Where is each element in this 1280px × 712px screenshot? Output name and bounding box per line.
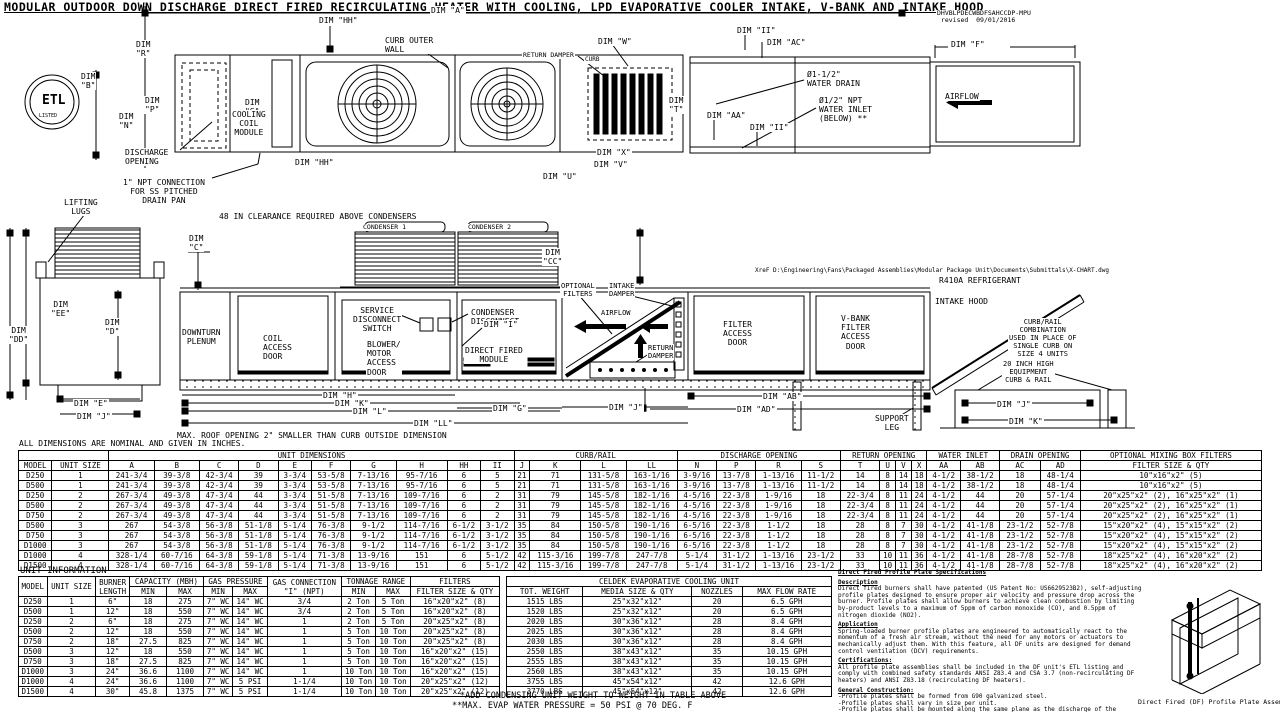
table-cell: 38-1/2 xyxy=(960,481,999,491)
table-row: 2560 LBS38"x43"x12"3510.15 GPH xyxy=(507,667,832,677)
table-cell: 6-1/2 xyxy=(447,521,480,531)
table-cell: 59-1/8 xyxy=(239,561,278,571)
dim-t-label: DIM "T" xyxy=(668,96,684,114)
table-cell: 4-1/2 xyxy=(927,501,960,511)
table-cell: 1-1/4 xyxy=(267,687,341,697)
table-cell: 59-1/8 xyxy=(239,551,278,561)
table-cell: 7-13/16 xyxy=(351,491,396,501)
table-cell: 2 xyxy=(481,491,514,501)
table-cell: 7" WC xyxy=(203,677,232,687)
table-cell: 22-3/4 xyxy=(840,491,879,501)
table-cell: 22-3/8 xyxy=(717,521,756,531)
table-cell: 5 xyxy=(481,481,514,491)
table-cell: D250 xyxy=(19,617,48,627)
table-cell: 5 xyxy=(481,471,514,481)
table-cell: 57-1/4 xyxy=(1040,511,1080,521)
table-cell: 2555 LBS xyxy=(507,657,583,667)
table-cell: 15"x20"x2" (4), 15"x15"x2" (2) xyxy=(1080,521,1261,531)
table-cell: 3 xyxy=(52,531,109,541)
table-cell: 5-1/4 xyxy=(278,521,311,531)
table-cell: 8.4 GPH xyxy=(742,627,831,637)
table-cell: 3 xyxy=(47,667,96,677)
table-cell: 328-1/4 xyxy=(109,561,154,571)
table-cell: 8 xyxy=(880,541,896,551)
table-cell: 52-7/8 xyxy=(1040,531,1080,541)
celdek-header-row: TOT. WEIGHTMEDIA SIZE & QTYNOZZLESMAX FL… xyxy=(507,587,832,597)
dim-r-label: DIM "R" xyxy=(135,40,151,58)
table-cell: 6 xyxy=(447,471,480,481)
dim-k-curb-label: DIM "K" xyxy=(1008,417,1044,426)
table-cell: 22-3/4 xyxy=(840,501,879,511)
table-cell: 4-1/2 xyxy=(927,511,960,521)
table-cell: 550 xyxy=(166,607,203,617)
table-cell: 18" xyxy=(96,637,130,647)
celdek-title: CELDEK EVAPORATIVE COOLING UNIT xyxy=(507,577,832,587)
table-cell: 35 xyxy=(692,667,742,677)
table-cell: D1000 xyxy=(19,667,48,677)
column-header: AD xyxy=(1040,461,1080,471)
table-cell: 6 xyxy=(447,491,480,501)
table-cell: 190-1/16 xyxy=(626,541,677,551)
table-cell: 15"x20"x2" (4), 15"x15"x2" (2) xyxy=(1080,531,1261,541)
table-cell: 13-9/16 xyxy=(351,551,396,561)
table-cell: 16"x20"x2" (15) xyxy=(410,667,499,677)
column-header: J xyxy=(514,461,530,471)
table-cell: 14" WC xyxy=(233,637,268,647)
table-cell: 7-13/16 xyxy=(351,511,396,521)
curb-outer-wall-label: CURB OUTER WALL xyxy=(384,36,434,54)
table-cell: 2 xyxy=(52,491,109,501)
table-cell: 10 Ton xyxy=(376,647,410,657)
table-cell: 7" WC xyxy=(203,597,232,607)
table-cell: 5-1/4 xyxy=(278,531,311,541)
table-cell: 3 xyxy=(52,541,109,551)
table-cell: 8 xyxy=(880,501,896,511)
table-cell: 2 xyxy=(52,501,109,511)
table-cell: 13-7/8 xyxy=(717,481,756,491)
table-row: 2550 LBS38"x43"x12"3510.15 GPH xyxy=(507,647,832,657)
table-row: D1000326754-3/856-3/851-1/85-1/476-3/89-… xyxy=(19,541,1262,551)
dim-x-label: DIM "X" xyxy=(596,148,632,157)
table-cell: 48-1/4 xyxy=(1040,481,1080,491)
table-cell: 49-3/8 xyxy=(154,501,199,511)
table-cell: 2 xyxy=(52,511,109,521)
table-cell: 5-1/2 xyxy=(481,561,514,571)
table-cell: 145-5/8 xyxy=(581,491,626,501)
column-header: V xyxy=(896,461,912,471)
table-cell: 76-3/8 xyxy=(312,521,351,531)
table-row: 2555 LBS38"x43"x12"3510.15 GPH xyxy=(507,657,832,667)
table-cell: 7-13/16 xyxy=(351,471,396,481)
table-cell: 4 xyxy=(52,551,109,561)
table-cell: 5-1/4 xyxy=(677,551,716,561)
table-cell: 5 Ton xyxy=(341,657,375,667)
table-cell: 5 Ton xyxy=(341,637,375,647)
table-cell: 20 xyxy=(1000,511,1040,521)
table-cell: 79 xyxy=(530,511,581,521)
table-cell: 22-3/8 xyxy=(717,541,756,551)
table-cell: 11-1/2 xyxy=(801,481,840,491)
table-cell: 20 xyxy=(692,607,742,617)
table-cell: 36.6 xyxy=(129,667,166,677)
general-construction-list: -Profile plates shall be formed from G90… xyxy=(838,694,1144,712)
table-cell: 6-1/2 xyxy=(447,541,480,551)
table-cell: 114-7/16 xyxy=(396,521,447,531)
table-cell: 22-3/4 xyxy=(840,511,879,521)
column-header: R xyxy=(756,461,801,471)
table-cell: 60-7/16 xyxy=(154,561,199,571)
table-cell: 28-7/8 xyxy=(1000,551,1040,561)
column-header: K xyxy=(530,461,581,471)
table-cell: 190-1/16 xyxy=(626,531,677,541)
table-cell: 1 xyxy=(267,637,341,647)
table-cell: 18"x25"x2" (4), 16"x20"x2" (2) xyxy=(1080,551,1261,561)
table-cell: 4-1/2 xyxy=(927,491,960,501)
table-cell: 56-3/8 xyxy=(199,541,238,551)
table-cell: 5 Ton xyxy=(376,617,410,627)
table-cell: 76-3/8 xyxy=(312,541,351,551)
table-cell: 56-3/8 xyxy=(199,521,238,531)
table-cell: 52-7/8 xyxy=(1040,561,1080,571)
table-row: D750318"27.58257" WC14" WC15 Ton10 Ton16… xyxy=(19,657,500,667)
table-cell: 5 Ton xyxy=(341,627,375,637)
drawing-labels: DHVBLPDECWBDFSAHCCDP-MPU revised 09/01/2… xyxy=(0,0,1280,445)
table-cell: 5 Ton xyxy=(376,597,410,607)
column-header: AB xyxy=(960,461,999,471)
table-row: D750218"27.58257" WC14" WC15 Ton10 Ton20… xyxy=(19,637,500,647)
table-cell: 28 xyxy=(692,637,742,647)
table-row: D500212"185507" WC14" WC15 Ton10 Ton20"x… xyxy=(19,627,500,637)
table-cell: 1-9/16 xyxy=(756,501,801,511)
table-cell: 1-9/16 xyxy=(756,491,801,501)
column-header: MEDIA SIZE & QTY xyxy=(583,587,692,597)
table-cell: 150-5/8 xyxy=(581,521,626,531)
table-cell: 10 Ton xyxy=(376,657,410,667)
table-cell: 30 xyxy=(911,531,927,541)
table-cell: 328-1/4 xyxy=(109,551,154,561)
table-cell: 71-3/8 xyxy=(312,561,351,571)
table-cell: 23-1/2 xyxy=(1000,531,1040,541)
table-cell: 6 xyxy=(447,561,480,571)
table-cell: 6 xyxy=(447,511,480,521)
table-cell: 10 xyxy=(880,551,896,561)
table-cell: 6" xyxy=(96,597,130,607)
table-cell: 23-1/2 xyxy=(801,551,840,561)
table-cell: 199-7/8 xyxy=(581,551,626,561)
table-cell: 1-1/4 xyxy=(267,677,341,687)
table-cell: 20"x25"x2" (2), 16"x25"x2" (1) xyxy=(1080,511,1261,521)
dim-p-label: DIM "P" xyxy=(144,96,160,114)
table-cell: 190-1/16 xyxy=(626,521,677,531)
table-cell: 10"x16"x2" (5) xyxy=(1080,471,1261,481)
lifting-lugs-label: LIFTING LUGS xyxy=(63,198,99,216)
table-cell: 4-5/16 xyxy=(677,491,716,501)
table-cell: 2020 LBS xyxy=(507,617,583,627)
table-cell: 22-3/8 xyxy=(717,511,756,521)
table-cell: 131-5/8 xyxy=(581,481,626,491)
table-cell: 5 Ton xyxy=(341,647,375,657)
table-cell: 9-1/2 xyxy=(351,541,396,551)
all-dims-note: ALL DIMENSIONS ARE NOMINAL AND GIVEN IN … xyxy=(18,439,246,448)
table-cell: 47-3/4 xyxy=(199,491,238,501)
table-cell: 51-5/8 xyxy=(312,511,351,521)
table-cell: 6.5 GPH xyxy=(742,607,831,617)
column-header: HH xyxy=(447,461,480,471)
table-cell: 30"x36"x12" xyxy=(583,627,692,637)
dim-g-label: DIM "G" xyxy=(492,404,528,413)
table-cell: 7" WC xyxy=(203,607,232,617)
table-cell: 3-3/4 xyxy=(278,471,311,481)
coil-access-door-label: COIL ACCESS DOOR xyxy=(262,334,293,362)
table-cell: 30 xyxy=(911,521,927,531)
table-cell: D1000 xyxy=(19,677,48,687)
table-cell: 3 xyxy=(47,657,96,667)
table-cell: 30" xyxy=(96,687,130,697)
table-cell: 8 xyxy=(880,511,896,521)
table-cell: 71-3/8 xyxy=(312,551,351,561)
column-header: FILTER SIZE & QTY xyxy=(1080,461,1261,471)
dim-e-label: DIM "E" xyxy=(73,399,109,408)
table-cell: 44 xyxy=(239,491,278,501)
table-cell: D500 xyxy=(19,647,48,657)
table-cell: 42 xyxy=(514,551,530,561)
table-cell: D250 xyxy=(19,491,52,501)
table-cell: 31-1/2 xyxy=(717,561,756,571)
column-header: UNIT SIZE xyxy=(52,461,109,471)
group-capacity: CAPACITY (MBH) xyxy=(129,577,203,587)
table-cell: 31 xyxy=(514,491,530,501)
table-cell: 163-1/16 xyxy=(626,481,677,491)
table-cell: 7 xyxy=(896,531,912,541)
table-cell: 2550 LBS xyxy=(507,647,583,657)
table-cell: 13-9/16 xyxy=(351,561,396,571)
table-cell: 145-5/8 xyxy=(581,501,626,511)
table-cell: 18 xyxy=(911,471,927,481)
table-cell: 6-5/16 xyxy=(677,541,716,551)
table-cell: 56-3/8 xyxy=(199,531,238,541)
col-burner-length: BURNER LENGTH xyxy=(96,577,130,597)
table-cell: 267-3/4 xyxy=(109,511,154,521)
table-cell: 54-3/8 xyxy=(154,531,199,541)
table-cell: 30 xyxy=(911,541,927,551)
table-cell: 10.15 GPH xyxy=(742,647,831,657)
intake-damper-label: INTAKE DAMPER xyxy=(608,282,635,298)
table-cell: 39-3/8 xyxy=(154,471,199,481)
table-cell: 18 xyxy=(801,521,840,531)
table-cell: 44 xyxy=(960,501,999,511)
table-cell: 13-7/8 xyxy=(717,471,756,481)
group-unit-dimensions: UNIT DIMENSIONS xyxy=(109,451,514,461)
table-cell: 10"x16"x2" (5) xyxy=(1080,481,1261,491)
dim-ii-1-label: DIM "II" xyxy=(736,26,777,35)
table-cell: 35 xyxy=(692,647,742,657)
table-cell: 114-7/16 xyxy=(396,541,447,551)
column-header: H xyxy=(396,461,447,471)
table-cell: 27.5 xyxy=(129,657,166,667)
table-cell: 11 xyxy=(896,501,912,511)
condenser-1-label: CONDENSER 1 xyxy=(362,224,407,231)
table-cell: 1 xyxy=(267,647,341,657)
table-cell: 1-13/16 xyxy=(756,481,801,491)
table-cell: 1100 xyxy=(166,667,203,677)
blank-header xyxy=(19,451,109,461)
table-cell: 1 xyxy=(267,667,341,677)
table-cell: D500 xyxy=(19,627,48,637)
table-cell: 14" WC xyxy=(233,617,268,627)
table-cell: 1-1/2 xyxy=(756,531,801,541)
table-cell: 1 xyxy=(47,607,96,617)
profile-plate-specifications: Direct Fired Profile Plate Specification… xyxy=(838,570,1144,712)
table-row: 2020 LBS30"x36"x12"288.4 GPH xyxy=(507,617,832,627)
table-cell: 39 xyxy=(239,481,278,491)
column-header: F xyxy=(312,461,351,471)
table-cell: 1520 LBS xyxy=(507,607,583,617)
table-cell: 84 xyxy=(530,541,581,551)
dimensions-table-body: D2501241-3/439-3/842-3/4393-3/453-5/87-1… xyxy=(19,471,1262,571)
vbank-door-label: V-BANK FILTER ACCESS DOOR xyxy=(840,314,871,351)
table-row: D1000324"36.611007" WC14" WC110 Ton10 To… xyxy=(19,667,500,677)
column-header: D xyxy=(239,461,278,471)
group-mixing-box-filters: OPTIONAL MIXING BOX FILTERS xyxy=(1080,451,1261,461)
table-cell: 16"x20"x2" (15) xyxy=(410,657,499,667)
table-cell: 41-1/8 xyxy=(960,541,999,551)
unit-information-table: MODEL UNIT SIZE BURNER LENGTH CAPACITY (… xyxy=(18,576,500,697)
table-cell: 41-1/8 xyxy=(960,551,999,561)
table-cell: D500 xyxy=(19,607,48,617)
table-cell: 3-3/4 xyxy=(278,511,311,521)
table-cell: 275 xyxy=(166,617,203,627)
table-cell: 4-5/16 xyxy=(677,501,716,511)
table-cell: 5-1/4 xyxy=(278,561,311,571)
table-cell: 15"x20"x2" (4), 15"x15"x2" (2) xyxy=(1080,541,1261,551)
table-row: 3755 LBS45"x54"x12"4212.6 GPH xyxy=(507,677,832,687)
sub-filter-size: FILTER SIZE & QTY xyxy=(410,587,499,597)
col-unit-size: UNIT SIZE xyxy=(47,577,96,597)
dim-c-label: DIM "C" xyxy=(188,234,204,252)
group-filters: FILTERS xyxy=(410,577,499,587)
table-cell: 3-1/2 xyxy=(481,531,514,541)
table-cell: 550 xyxy=(166,647,203,657)
table-cell: 1 xyxy=(267,657,341,667)
table-cell: 33 xyxy=(840,551,879,561)
table-cell: 44 xyxy=(239,511,278,521)
table-cell: 71 xyxy=(530,471,581,481)
table-row: 2025 LBS30"x36"x12"288.4 GPH xyxy=(507,627,832,637)
table-cell: 20"x25"x2" (8) xyxy=(410,617,499,627)
celdek-table-body: 1515 LBS25"x32"x12"206.5 GPH1520 LBS25"x… xyxy=(507,597,832,697)
table-cell: 64-3/8 xyxy=(199,561,238,571)
table-cell: 41-1/8 xyxy=(960,531,999,541)
table-cell: 27.5 xyxy=(129,637,166,647)
table-cell: 30"x36"x12" xyxy=(583,617,692,627)
direct-fired-module-label: DIRECT FIRED MODULE xyxy=(464,346,524,364)
table-cell: 35 xyxy=(692,657,742,667)
clearance-note: 48 IN CLEARANCE REQUIRED ABOVE CONDENSER… xyxy=(218,212,417,221)
table-cell: 16"x20"x2" (15) xyxy=(410,647,499,657)
table-cell: 10 Ton xyxy=(376,627,410,637)
table-cell: 18" xyxy=(96,657,130,667)
table-cell: 3-9/16 xyxy=(677,481,716,491)
column-header: MODEL xyxy=(19,461,52,471)
table-cell: D500 xyxy=(19,501,52,511)
table-cell: D250 xyxy=(19,471,52,481)
table-cell: 52-7/8 xyxy=(1040,521,1080,531)
dim-a-label: DIM "A" xyxy=(430,6,466,15)
table-cell: 5 PSI xyxy=(233,687,268,697)
table-cell: 1-13/16 xyxy=(756,471,801,481)
table-cell: 36.6 xyxy=(129,677,166,687)
dim-n-label: DIM "N" xyxy=(118,112,134,130)
dim-ll-label: DIM "LL" xyxy=(413,419,454,428)
table-cell: 38"x43"x12" xyxy=(583,657,692,667)
dimensions-table: UNIT DIMENSIONS CURB/RAIL DISCHARGE OPEN… xyxy=(18,450,1262,571)
table-cell: 51-5/8 xyxy=(312,491,351,501)
table-cell: 4 xyxy=(47,687,96,697)
group-gas-pressure: GAS PRESSURE xyxy=(203,577,267,587)
table-cell: 12.6 GPH xyxy=(742,687,831,697)
table-cell: 3755 LBS xyxy=(507,677,583,687)
table-cell: 6.5 GPH xyxy=(742,597,831,607)
table-cell: 18 xyxy=(1000,471,1040,481)
table-cell: 2 xyxy=(481,501,514,511)
table-row: D1000424"36.611007" WC5 PSI1-1/410 Ton10… xyxy=(19,677,500,687)
table-cell: 18 xyxy=(129,607,166,617)
table-cell: 267-3/4 xyxy=(109,501,154,511)
table-cell: 825 xyxy=(166,657,203,667)
table-cell: 18 xyxy=(1000,481,1040,491)
table-cell: 71 xyxy=(530,481,581,491)
table-cell: 54-3/8 xyxy=(154,541,199,551)
group-water-inlet: WATER INLET xyxy=(927,451,1000,461)
table-cell: 267 xyxy=(109,531,154,541)
table-row: D500326754-3/856-3/851-1/85-1/476-3/89-1… xyxy=(19,521,1262,531)
return-damper-plan-label: RETURN DAMPER xyxy=(522,52,575,59)
table-row: 1520 LBS25"x32"x12"206.5 GPH xyxy=(507,607,832,617)
table-cell: D750 xyxy=(19,511,52,521)
table-cell: 20"x25"x2" (8) xyxy=(410,627,499,637)
table-cell: 44 xyxy=(239,501,278,511)
table-cell: 1 xyxy=(52,481,109,491)
table-cell: 10 Ton xyxy=(376,637,410,647)
table-cell: 114-7/16 xyxy=(396,531,447,541)
table-cell: 47-3/4 xyxy=(199,511,238,521)
sub-min: MIN xyxy=(203,587,232,597)
table-cell: 3-9/16 xyxy=(677,471,716,481)
table-cell: 16"x20"x2" (8) xyxy=(410,607,499,617)
table-row: D10004328-1/460-7/1664-3/859-1/85-1/471-… xyxy=(19,551,1262,561)
dim-v-label: DIM "V" xyxy=(593,160,629,169)
table-cell: 35 xyxy=(514,521,530,531)
table-cell: 3/4 xyxy=(267,607,341,617)
table-cell: 7" WC xyxy=(203,667,232,677)
table-cell: 6 xyxy=(447,501,480,511)
table-cell: 550 xyxy=(166,627,203,637)
table-row: D1500430"45.813757" WC5 PSI1-1/410 Ton10… xyxy=(19,687,500,697)
unit-information-title: UNIT INFORMATION xyxy=(20,566,107,576)
table-cell: 21 xyxy=(514,481,530,491)
column-header: S xyxy=(801,461,840,471)
table-cell: 1515 LBS xyxy=(507,597,583,607)
column-header: AC xyxy=(1000,461,1040,471)
table-cell: 1 xyxy=(52,471,109,481)
table-cell: 95-7/16 xyxy=(396,481,447,491)
table-cell: 8.4 GPH xyxy=(742,617,831,627)
dim-f-label: DIM "F" xyxy=(950,40,986,49)
table-cell: 18 xyxy=(801,501,840,511)
table-cell: 14 xyxy=(840,481,879,491)
table-cell: 42-3/4 xyxy=(199,471,238,481)
dim-hh-mid-label: DIM "HH" xyxy=(294,158,335,167)
